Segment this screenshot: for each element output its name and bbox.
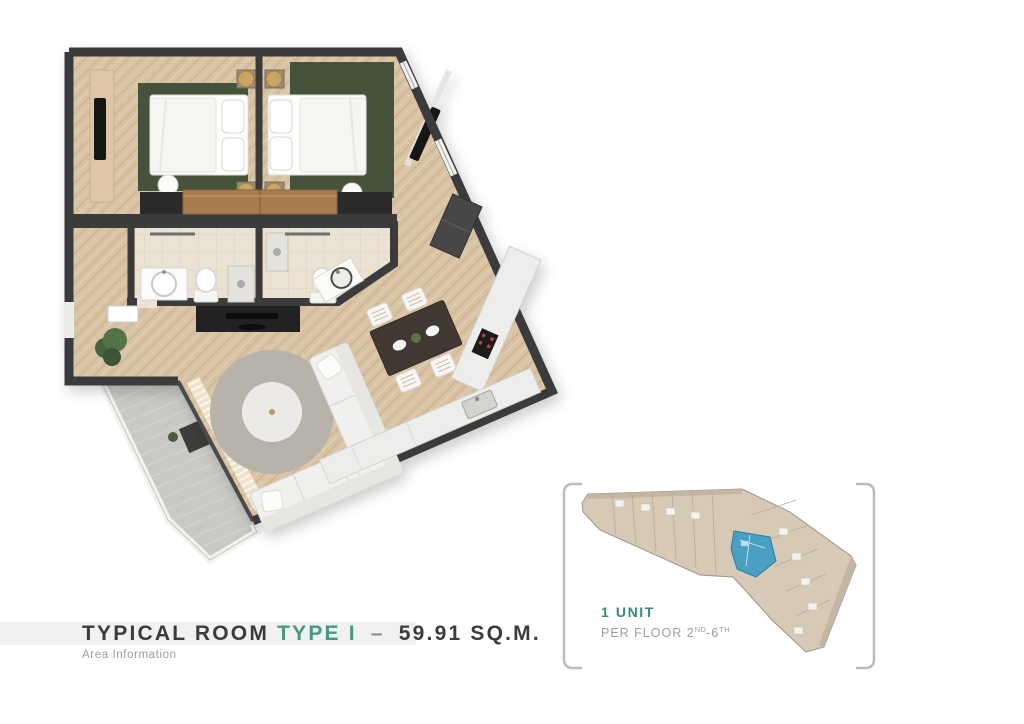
bedroom-1-tv — [94, 98, 106, 160]
page-subtitle: Area Information — [82, 649, 177, 661]
tv — [226, 313, 278, 319]
right-bracket — [857, 484, 874, 668]
entry-bench — [108, 306, 138, 322]
per-floor-label: PER FLOOR 2ND-6TH — [601, 625, 730, 640]
title-separator: – — [365, 622, 391, 645]
wardrobes — [140, 190, 392, 214]
title-prefix: TYPICAL ROOM — [82, 622, 269, 645]
entry-door-gap — [64, 302, 74, 338]
bed-1 — [150, 95, 248, 175]
brochure-page: 1 UNIT PER FLOOR 2ND-6TH TYPICAL ROOM TY… — [0, 0, 1024, 724]
lamp — [238, 71, 254, 87]
building-floor-plate — [556, 476, 882, 676]
bed-2 — [268, 95, 366, 175]
title-type: TYPE I — [277, 622, 357, 645]
page-title: TYPICAL ROOM TYPE I – 59.91 SQ.M. — [82, 621, 541, 646]
title-area: 59.91 SQ.M. — [399, 622, 541, 645]
lamp — [266, 71, 282, 87]
unit-count-label: 1 UNIT — [601, 604, 730, 620]
sink — [152, 272, 176, 296]
balcony-plant — [168, 432, 178, 442]
unit-info: 1 UNIT PER FLOOR 2ND-6TH — [601, 604, 730, 640]
toilet — [196, 268, 216, 292]
left-bracket — [564, 484, 581, 668]
